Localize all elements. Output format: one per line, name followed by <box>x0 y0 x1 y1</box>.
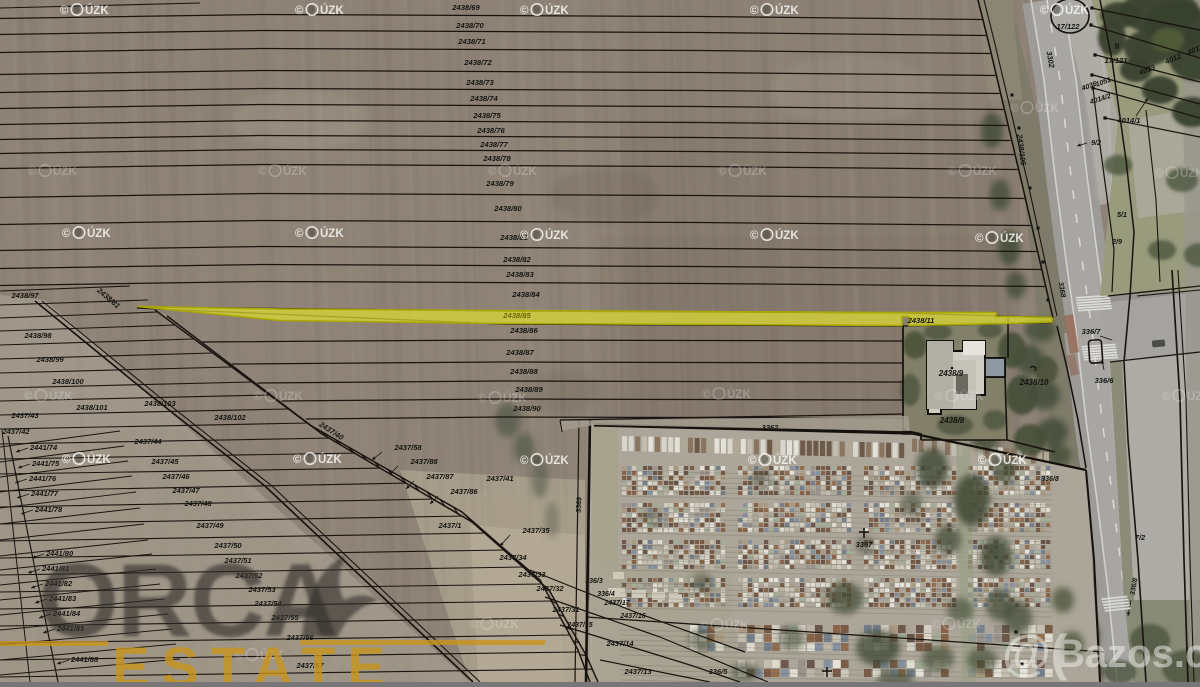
svg-text:2441/77: 2441/77 <box>30 489 59 498</box>
svg-text:2438/102: 2438/102 <box>213 413 246 422</box>
svg-text:2438/71: 2438/71 <box>457 37 485 46</box>
svg-text:©: © <box>28 166 37 178</box>
svg-text:2438/70: 2438/70 <box>455 21 484 30</box>
svg-text:©: © <box>948 166 957 178</box>
svg-text:2437/87: 2437/87 <box>425 472 454 481</box>
svg-text:©: © <box>520 5 529 17</box>
svg-text:2438/82: 2438/82 <box>502 255 531 264</box>
svg-text:ÚZK: ÚZK <box>513 165 537 178</box>
svg-text:2438/84: 2438/84 <box>511 290 540 299</box>
svg-text:2437/13: 2437/13 <box>623 667 652 676</box>
svg-text:2437/86: 2437/86 <box>449 487 478 496</box>
svg-text:ÚZK: ÚZK <box>320 227 344 240</box>
svg-text:2437/43: 2437/43 <box>10 411 39 420</box>
svg-text:2438/74: 2438/74 <box>469 94 498 103</box>
svg-text:ÚZK: ÚZK <box>743 165 767 178</box>
svg-text:©: © <box>750 5 759 17</box>
svg-text:2438/10: 2438/10 <box>1019 378 1049 387</box>
svg-text:2438/98: 2438/98 <box>23 331 52 340</box>
svg-text:2437/46: 2437/46 <box>161 472 190 481</box>
svg-text:ÚZK: ÚZK <box>495 618 519 631</box>
svg-text:ÚZK: ÚZK <box>957 618 981 631</box>
svg-text:2438/83: 2438/83 <box>505 270 534 279</box>
svg-text:©: © <box>1155 168 1164 180</box>
svg-text:ÚZK: ÚZK <box>773 454 797 467</box>
svg-text:3369: 3369 <box>576 497 584 513</box>
svg-text:2437/14: 2437/14 <box>605 639 634 648</box>
svg-text:2438/79: 2438/79 <box>485 179 514 188</box>
svg-text:2437/1: 2437/1 <box>438 521 462 530</box>
svg-text:ÚZK: ÚZK <box>1180 167 1200 180</box>
svg-text:ÚZK: ÚZK <box>1065 4 1089 17</box>
svg-text:2438/85: 2438/85 <box>502 311 531 320</box>
svg-text:2437/48: 2437/48 <box>183 499 212 508</box>
svg-text:4014/1: 4014/1 <box>1117 116 1141 125</box>
svg-text:©: © <box>1040 5 1049 17</box>
svg-text:336/4: 336/4 <box>597 591 615 598</box>
svg-text:ÚZK: ÚZK <box>725 619 749 632</box>
svg-text:©: © <box>750 230 759 242</box>
svg-text:ÚZK: ÚZK <box>283 165 307 178</box>
svg-text:Bazos.cz: Bazos.cz <box>1056 632 1200 676</box>
svg-text:9/2: 9/2 <box>1091 140 1101 147</box>
svg-text:ÚZK: ÚZK <box>1035 102 1059 115</box>
svg-text:2441/78: 2441/78 <box>34 505 63 514</box>
svg-text:336/6: 336/6 <box>1095 376 1115 385</box>
svg-text:©: © <box>1010 103 1019 115</box>
svg-text:©: © <box>24 391 33 403</box>
svg-text:ÚZK: ÚZK <box>727 388 751 401</box>
svg-text:©: © <box>295 228 304 240</box>
svg-text:2438/100: 2438/100 <box>51 377 84 386</box>
svg-text:2438/9: 2438/9 <box>938 369 964 378</box>
svg-text:ÚZK: ÚZK <box>960 390 984 403</box>
svg-text:2441/75: 2441/75 <box>31 459 60 468</box>
svg-text:2437/88: 2437/88 <box>409 457 438 466</box>
svg-text:2438/72: 2438/72 <box>463 58 492 67</box>
svg-text:2437/16: 2437/16 <box>619 613 645 620</box>
svg-text:3367: 3367 <box>856 540 874 549</box>
svg-text:2438/87: 2438/87 <box>505 348 534 357</box>
svg-text:©: © <box>975 233 984 245</box>
svg-text:2438/99: 2438/99 <box>35 355 64 364</box>
svg-text:2438/80: 2438/80 <box>493 204 522 213</box>
svg-text:2438/86: 2438/86 <box>509 326 538 335</box>
svg-text:2437/35: 2437/35 <box>521 526 550 535</box>
svg-text:17/122: 17/122 <box>1057 22 1081 31</box>
svg-text:336/8: 336/8 <box>1041 476 1059 483</box>
svg-text:©: © <box>254 391 263 403</box>
svg-text:2437/34: 2437/34 <box>498 553 527 562</box>
svg-text:©: © <box>295 5 304 17</box>
svg-text:©: © <box>62 228 71 240</box>
svg-text:2437/41: 2437/41 <box>485 474 513 483</box>
svg-text:ÚZK: ÚZK <box>318 453 342 466</box>
svg-text:©: © <box>470 619 479 631</box>
svg-text:2437/49: 2437/49 <box>195 521 224 530</box>
svg-text:ÚZK: ÚZK <box>1003 454 1027 467</box>
svg-text:©: © <box>748 455 757 467</box>
svg-text:©: © <box>1162 391 1171 403</box>
svg-text:©: © <box>932 619 941 631</box>
svg-text:2437/58: 2437/58 <box>393 443 422 452</box>
svg-text:ÚZK: ÚZK <box>1187 390 1200 403</box>
svg-text:2441/76: 2441/76 <box>28 474 57 483</box>
svg-text:2437/32: 2437/32 <box>535 584 564 593</box>
svg-text:ÚZK: ÚZK <box>545 454 569 467</box>
svg-text:2438/88: 2438/88 <box>509 367 538 376</box>
svg-text:ÚZK: ÚZK <box>775 229 799 242</box>
svg-text:3362: 3362 <box>762 423 780 432</box>
svg-text:2438/78: 2438/78 <box>482 154 511 163</box>
svg-text:©: © <box>488 166 497 178</box>
svg-text:ÚZK: ÚZK <box>320 4 344 17</box>
svg-text:II: II <box>1115 42 1119 51</box>
svg-text:17/121: 17/121 <box>1105 56 1128 65</box>
svg-text:336/7: 336/7 <box>1082 327 1102 336</box>
svg-text:2438/75: 2438/75 <box>472 111 501 120</box>
svg-text:7/2: 7/2 <box>1135 533 1146 542</box>
svg-text:2438/103: 2438/103 <box>143 399 176 408</box>
svg-text:336/5: 336/5 <box>709 667 729 676</box>
svg-text:©: © <box>520 230 529 242</box>
svg-text:ÚZK: ÚZK <box>49 390 73 403</box>
svg-text:ÚZK: ÚZK <box>85 4 109 17</box>
svg-text:©: © <box>978 455 987 467</box>
svg-text:2438/77: 2438/77 <box>479 140 508 149</box>
svg-text:2437/47: 2437/47 <box>171 486 200 495</box>
svg-text:2441/74: 2441/74 <box>29 443 58 452</box>
svg-text:2437/45: 2437/45 <box>150 457 179 466</box>
svg-text:©: © <box>293 454 302 466</box>
svg-text:2/9: 2/9 <box>1111 239 1122 246</box>
svg-text:2438/8: 2438/8 <box>939 416 965 425</box>
svg-text:2437/42: 2437/42 <box>1 427 30 436</box>
svg-text:2438/69: 2438/69 <box>451 3 480 12</box>
svg-text:©: © <box>258 166 267 178</box>
svg-text:©: © <box>718 166 727 178</box>
svg-text:2437/15: 2437/15 <box>566 622 592 629</box>
svg-text:ÚZK: ÚZK <box>279 390 303 403</box>
svg-text:ÚZK: ÚZK <box>503 392 527 405</box>
svg-text:336/3: 336/3 <box>585 578 603 585</box>
svg-text:2437/33: 2437/33 <box>517 570 546 579</box>
svg-text:©: © <box>60 5 69 17</box>
svg-text:2438/11: 2438/11 <box>907 316 935 325</box>
svg-text:ÚZK: ÚZK <box>53 165 77 178</box>
svg-text:2438/90: 2438/90 <box>512 404 541 413</box>
svg-text:2438/76: 2438/76 <box>476 126 505 135</box>
svg-text:ÚZK: ÚZK <box>545 229 569 242</box>
svg-text:2437/44: 2437/44 <box>133 437 162 446</box>
svg-text:2438/97: 2438/97 <box>10 291 39 300</box>
svg-text:ÚZK: ÚZK <box>87 453 111 466</box>
svg-text:ÚZK: ÚZK <box>545 4 569 17</box>
svg-text:ÚZK: ÚZK <box>87 227 111 240</box>
svg-text:2438/101: 2438/101 <box>75 403 107 412</box>
svg-text:5/1: 5/1 <box>1117 212 1127 219</box>
svg-text:©: © <box>700 620 709 632</box>
svg-text:©: © <box>520 455 529 467</box>
svg-text:©: © <box>935 391 944 403</box>
svg-text:©: © <box>478 393 487 405</box>
svg-text:2437/31: 2437/31 <box>551 605 579 614</box>
svg-text:©: © <box>702 389 711 401</box>
svg-text:ÚZK: ÚZK <box>973 165 997 178</box>
svg-text:2438/73: 2438/73 <box>465 78 494 87</box>
svg-text:©: © <box>62 454 71 466</box>
svg-text:2437/17: 2437/17 <box>603 600 630 607</box>
svg-text:ÚZK: ÚZK <box>775 4 799 17</box>
svg-text:ÚZK: ÚZK <box>1000 232 1024 245</box>
